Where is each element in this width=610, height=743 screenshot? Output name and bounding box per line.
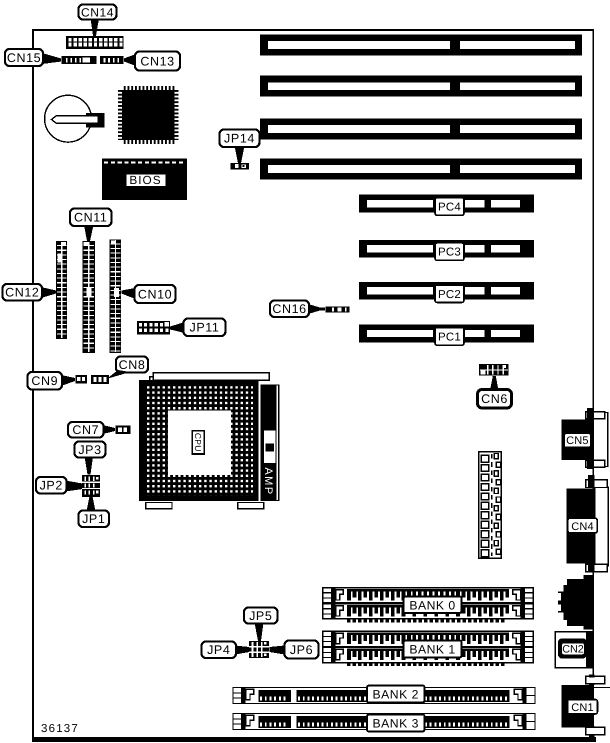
svg-text:PC4: PC4 [438, 202, 461, 214]
svg-text:CN15: CN15 [7, 51, 41, 65]
svg-text:BANK 0: BANK 0 [409, 598, 455, 612]
svg-text:CN2: CN2 [562, 644, 584, 656]
svg-text:JP6: JP6 [290, 643, 313, 657]
svg-text:CN14: CN14 [81, 5, 114, 19]
svg-text:PC3: PC3 [438, 247, 461, 259]
svg-text:CN6: CN6 [481, 392, 508, 406]
svg-text:CN7: CN7 [72, 423, 99, 437]
svg-text:BANK 3: BANK 3 [373, 717, 419, 731]
svg-text:JP5: JP5 [249, 609, 272, 623]
svg-text:PC1: PC1 [438, 332, 461, 344]
svg-text:AMP: AMP [262, 467, 274, 495]
svg-text:PC2: PC2 [438, 289, 461, 301]
svg-text:CPU: CPU [193, 433, 203, 452]
svg-text:JP14: JP14 [224, 132, 255, 146]
svg-text:JP2: JP2 [40, 479, 63, 493]
svg-text:CN13: CN13 [140, 54, 174, 68]
svg-text:JP4: JP4 [207, 643, 230, 657]
svg-text:CN5: CN5 [566, 435, 589, 447]
svg-text:CN10: CN10 [138, 287, 172, 301]
svg-text:36137: 36137 [41, 723, 79, 735]
svg-text:CN9: CN9 [31, 374, 58, 388]
svg-text:CN11: CN11 [74, 211, 107, 225]
svg-text:CN8: CN8 [119, 358, 146, 372]
svg-text:BANK 2: BANK 2 [373, 688, 419, 702]
svg-text:BANK 1: BANK 1 [409, 643, 455, 657]
svg-text:JP1: JP1 [82, 512, 105, 526]
svg-text:BIOS: BIOS [129, 173, 161, 187]
svg-text:JP11: JP11 [190, 321, 220, 335]
svg-text:JP3: JP3 [78, 443, 101, 457]
svg-text:CN16: CN16 [272, 302, 306, 316]
svg-text:CN12: CN12 [5, 286, 39, 300]
svg-text:CN4: CN4 [571, 521, 594, 533]
svg-text:CN1: CN1 [571, 702, 594, 714]
